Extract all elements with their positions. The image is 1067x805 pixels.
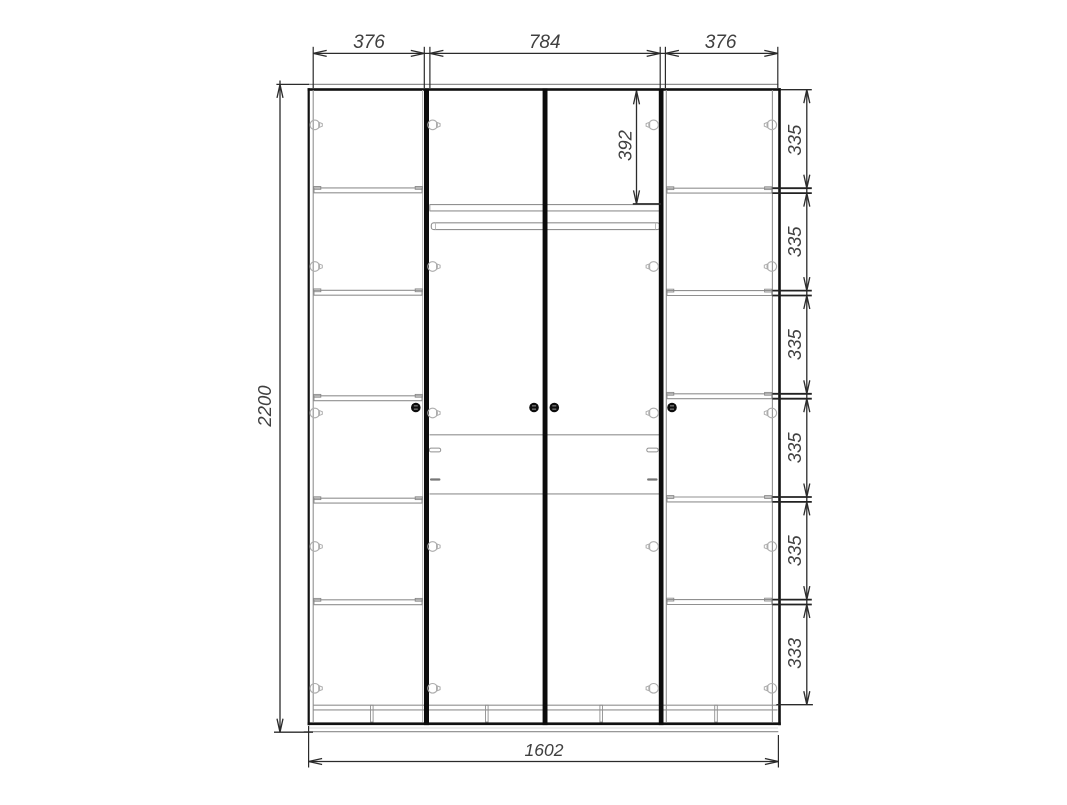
- svg-text:333: 333: [784, 637, 805, 669]
- svg-text:335: 335: [784, 124, 805, 156]
- svg-text:376: 376: [705, 32, 737, 53]
- svg-text:784: 784: [529, 32, 561, 53]
- svg-text:1602: 1602: [525, 740, 564, 760]
- svg-text:2200: 2200: [254, 385, 275, 428]
- svg-text:392: 392: [615, 129, 636, 161]
- svg-text:335: 335: [784, 535, 805, 567]
- svg-text:335: 335: [784, 329, 805, 361]
- svg-text:376: 376: [353, 32, 385, 53]
- svg-text:335: 335: [784, 226, 805, 258]
- svg-text:335: 335: [784, 432, 805, 464]
